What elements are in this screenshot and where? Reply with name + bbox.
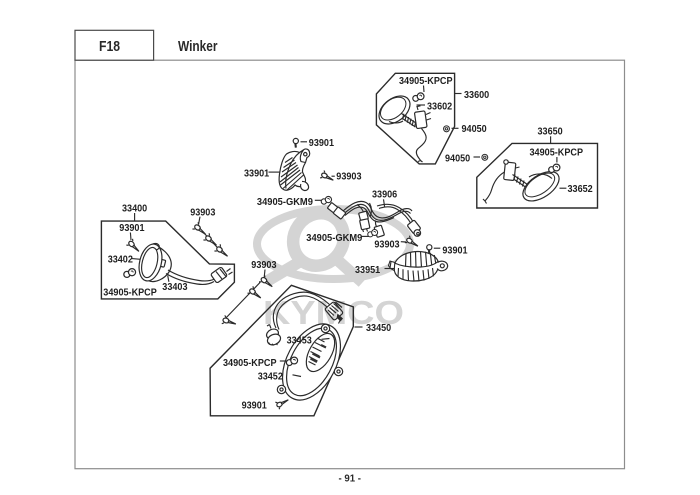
svg-text:33602: 33602 (427, 102, 453, 113)
svg-text:93903: 93903 (190, 207, 216, 218)
svg-text:34905-KPCP: 34905-KPCP (530, 148, 584, 159)
svg-text:93901: 93901 (442, 245, 468, 256)
svg-text:94050: 94050 (445, 153, 471, 164)
svg-text:33650: 33650 (538, 126, 564, 137)
svg-text:33600: 33600 (464, 90, 490, 101)
svg-text:33652: 33652 (568, 184, 594, 195)
svg-text:33906: 33906 (372, 190, 398, 201)
svg-text:94050: 94050 (462, 124, 488, 135)
svg-text:33403: 33403 (162, 282, 188, 293)
svg-text:33453: 33453 (287, 335, 313, 346)
svg-text:93901: 93901 (309, 138, 335, 149)
svg-text:93901: 93901 (119, 223, 145, 234)
svg-text:33402: 33402 (108, 254, 134, 265)
svg-text:34905-KPCP: 34905-KPCP (103, 288, 157, 299)
svg-text:93903: 93903 (251, 260, 277, 271)
svg-text:F18: F18 (99, 38, 120, 55)
svg-text:93903: 93903 (374, 240, 400, 251)
svg-text:33450: 33450 (366, 323, 392, 334)
svg-text:93903: 93903 (336, 172, 362, 183)
svg-text:Winker: Winker (178, 39, 218, 55)
svg-text:34905-GKM9: 34905-GKM9 (257, 197, 313, 208)
svg-text:34905-GKM9: 34905-GKM9 (306, 233, 362, 244)
svg-text:33901: 33901 (244, 169, 270, 180)
svg-text:93901: 93901 (242, 400, 268, 411)
svg-text:34905-KPCP: 34905-KPCP (223, 358, 277, 369)
svg-text:33951: 33951 (355, 265, 381, 276)
svg-text:- 91 -: - 91 - (339, 472, 362, 484)
svg-text:34905-KPCP: 34905-KPCP (399, 76, 453, 87)
svg-text:33452: 33452 (258, 371, 284, 382)
